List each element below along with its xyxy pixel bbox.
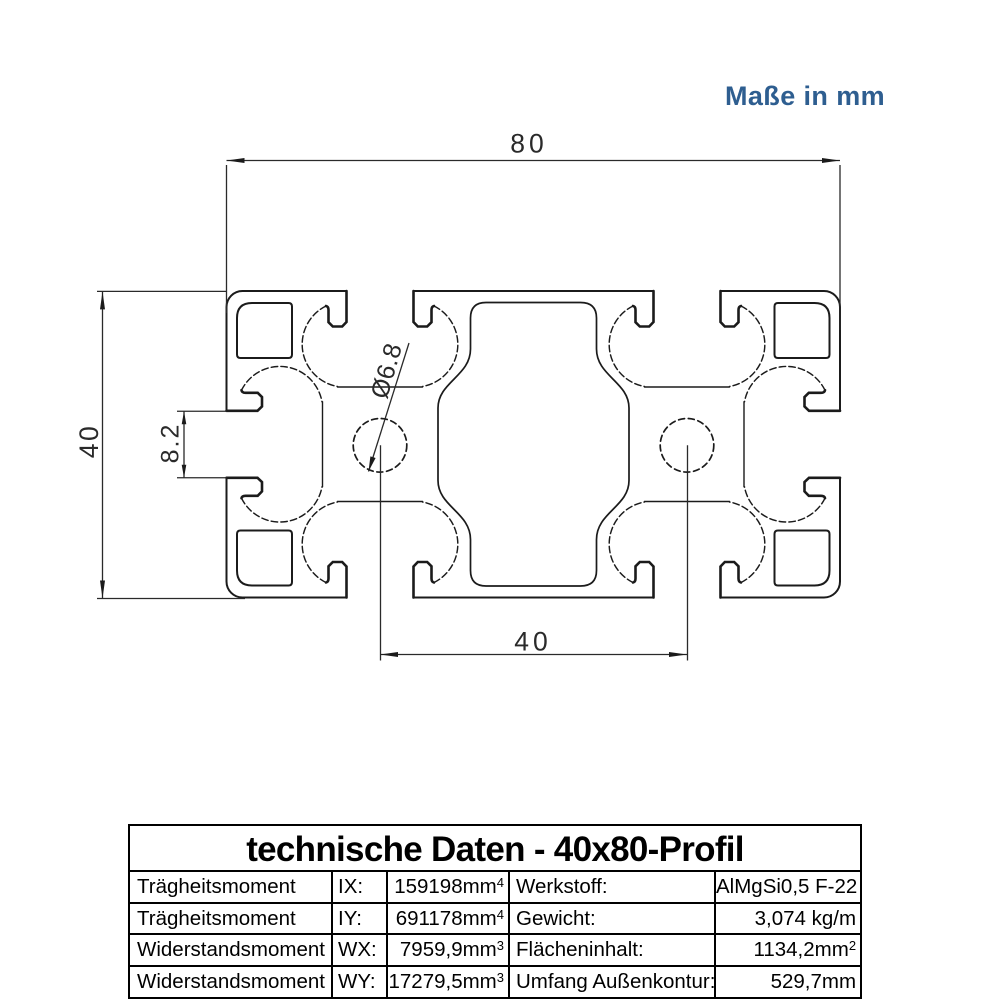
svg-text:8.2: 8.2 — [157, 423, 185, 464]
svg-text:40: 40 — [74, 424, 104, 458]
svg-text:80: 80 — [510, 129, 547, 159]
svg-text:Ø6.8: Ø6.8 — [366, 340, 408, 402]
svg-text:40: 40 — [514, 627, 551, 657]
